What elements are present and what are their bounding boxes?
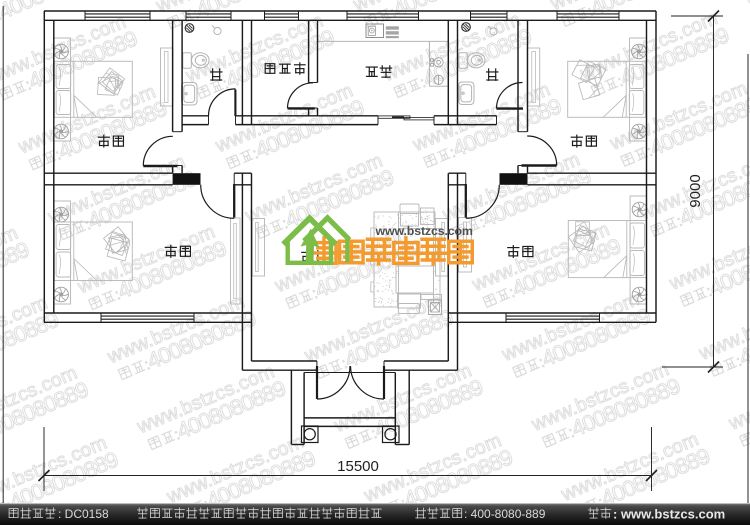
svg-text:9000: 9000 (687, 174, 704, 207)
svg-text:: DC0158: : DC0158 (58, 507, 109, 521)
svg-text:: www.bstzcs.com: : www.bstzcs.com (613, 507, 725, 522)
svg-text:www.bstzcs.com: www.bstzcs.com (375, 224, 473, 238)
svg-text:: 400-8080-889: : 400-8080-889 (464, 507, 546, 521)
svg-text:15500: 15500 (337, 458, 379, 475)
